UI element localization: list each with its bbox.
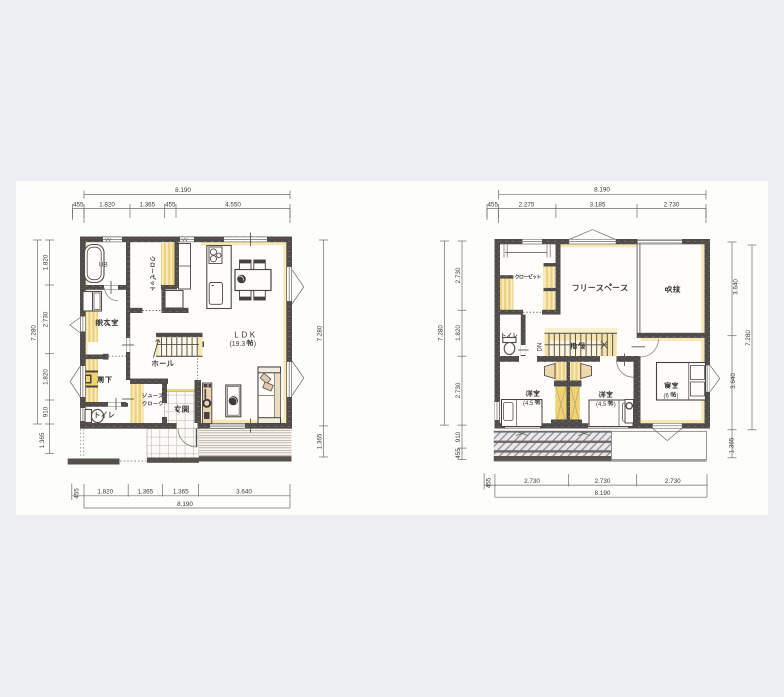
svg-text:3.640: 3.640 — [236, 488, 252, 495]
svg-text:2.730: 2.730 — [455, 267, 462, 283]
svg-text:2.730: 2.730 — [665, 478, 681, 485]
svg-text:(19.3: (19.3 — [230, 341, 246, 348]
svg-text:8.190: 8.190 — [595, 490, 611, 497]
svg-text:1.820: 1.820 — [455, 325, 462, 341]
svg-text:(6: (6 — [664, 393, 670, 399]
svg-text:): ) — [541, 401, 543, 407]
svg-text:2.275: 2.275 — [519, 201, 535, 208]
svg-text:1.365: 1.365 — [173, 488, 189, 495]
svg-text:455: 455 — [455, 448, 462, 459]
svg-text:1.365: 1.365 — [317, 433, 324, 449]
svg-text:): ) — [254, 341, 256, 348]
svg-text:1.365: 1.365 — [137, 488, 153, 495]
svg-text:1.820: 1.820 — [99, 201, 115, 208]
svg-text:2.730: 2.730 — [524, 478, 540, 485]
svg-text:1.820: 1.820 — [43, 369, 50, 385]
svg-text:(4.5: (4.5 — [596, 402, 607, 408]
svg-text:455: 455 — [488, 201, 499, 208]
svg-text:1.820: 1.820 — [43, 254, 50, 270]
svg-text:3.640: 3.640 — [730, 373, 737, 389]
svg-text:1.365: 1.365 — [39, 432, 46, 448]
svg-text:7.280: 7.280 — [31, 325, 38, 341]
svg-text:LDK: LDK — [234, 331, 257, 340]
svg-text:2.730: 2.730 — [455, 382, 462, 398]
svg-text:1.820: 1.820 — [97, 488, 113, 495]
svg-text:1.365: 1.365 — [729, 437, 736, 453]
svg-text:8.190: 8.190 — [175, 187, 191, 194]
svg-text:): ) — [677, 393, 679, 399]
svg-text:7.280: 7.280 — [745, 330, 752, 346]
svg-text:2.730: 2.730 — [43, 311, 50, 327]
svg-text:455: 455 — [486, 477, 493, 488]
svg-text:455: 455 — [74, 488, 81, 499]
svg-text:2.730: 2.730 — [595, 478, 611, 485]
svg-text:4.550: 4.550 — [225, 201, 241, 208]
svg-text:7.280: 7.280 — [438, 325, 445, 341]
svg-text:3.185: 3.185 — [590, 201, 606, 208]
svg-text:455: 455 — [73, 201, 84, 208]
svg-text:UB: UB — [99, 262, 108, 269]
svg-text:910: 910 — [455, 431, 462, 442]
svg-text:(4.5: (4.5 — [523, 401, 534, 407]
svg-text:DN: DN — [538, 343, 544, 352]
svg-text:): ) — [614, 402, 616, 408]
svg-text:8.190: 8.190 — [594, 187, 610, 194]
svg-text:3.640: 3.640 — [733, 279, 740, 295]
svg-text:2.730: 2.730 — [664, 201, 680, 208]
svg-text:7.280: 7.280 — [317, 325, 324, 341]
svg-text:1.365: 1.365 — [139, 201, 155, 208]
svg-text:910: 910 — [43, 406, 50, 417]
svg-text:455: 455 — [165, 201, 176, 208]
svg-text:8.190: 8.190 — [177, 501, 193, 508]
